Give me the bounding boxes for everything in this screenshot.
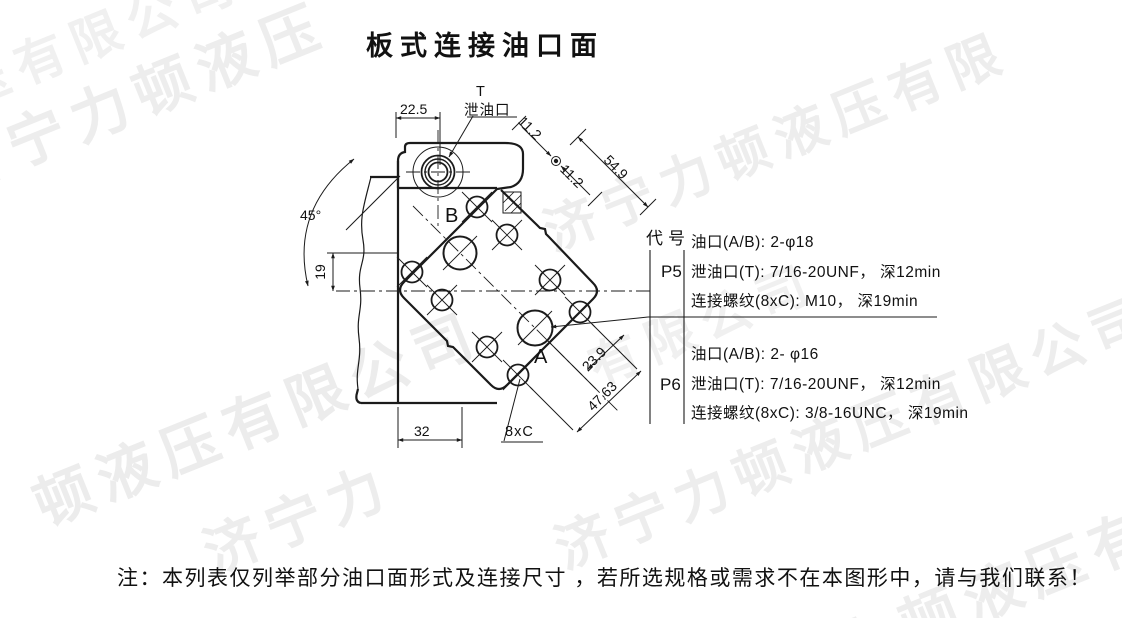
spec-row: 泄油口(T): 7/16-20UNF， 深12min xyxy=(691,372,941,394)
port-b-circle xyxy=(443,236,477,270)
spec-row: 油口(A/B): 2- φ16 xyxy=(691,342,819,364)
spec-row: 连接螺纹(8xC): 3/8-16UNC， 深19min xyxy=(691,401,969,423)
centerlines xyxy=(336,130,650,411)
footer-note: 注：本列表仅列举部分油口面形式及连接尺寸 ，若所选规格或需求不在本图形中，请与我… xyxy=(117,562,1092,592)
spec-row: 泄油口(T): 7/16-20UNF， 深12min xyxy=(691,260,941,282)
bolt-hole xyxy=(427,285,457,315)
page-title: 板式连接油口面 xyxy=(366,24,604,63)
bolt-hole xyxy=(397,257,427,287)
spec-row: 油口(A/B): 2-φ18 xyxy=(691,230,814,252)
dim-45-deg: 45° xyxy=(300,207,321,223)
bolt-hole xyxy=(462,192,492,222)
t-port-name-label: 泄油口 xyxy=(464,99,511,120)
port-b-label: B xyxy=(445,205,458,228)
bolt-hole xyxy=(535,265,565,295)
drawing-page: 济宁力顿液压 济宁力顿液压有限 顿液压有限公司 济宁力 济宁力顿液压有限公司 力… xyxy=(0,0,1122,618)
spec-row: 连接螺纹(8xC): M10， 深19min xyxy=(691,289,918,311)
break-line xyxy=(357,177,371,389)
port-a-label: A xyxy=(534,346,547,369)
bolt-hole xyxy=(492,220,522,250)
dim-19: 19 xyxy=(312,264,328,280)
valve-port-face-drawing xyxy=(0,0,1122,618)
spec-table-header: 代号 xyxy=(646,224,690,249)
spec-code-p6: P6 xyxy=(660,375,681,395)
dim-22-5: 22.5 xyxy=(400,101,427,117)
t-port-label: T xyxy=(476,84,486,100)
bolt-hole xyxy=(472,332,502,362)
dim-32: 32 xyxy=(414,423,430,439)
spec-code-p5: P5 xyxy=(661,262,682,282)
bolt-holes-label: 8xC xyxy=(505,424,534,440)
plate-body-outline xyxy=(356,143,597,403)
